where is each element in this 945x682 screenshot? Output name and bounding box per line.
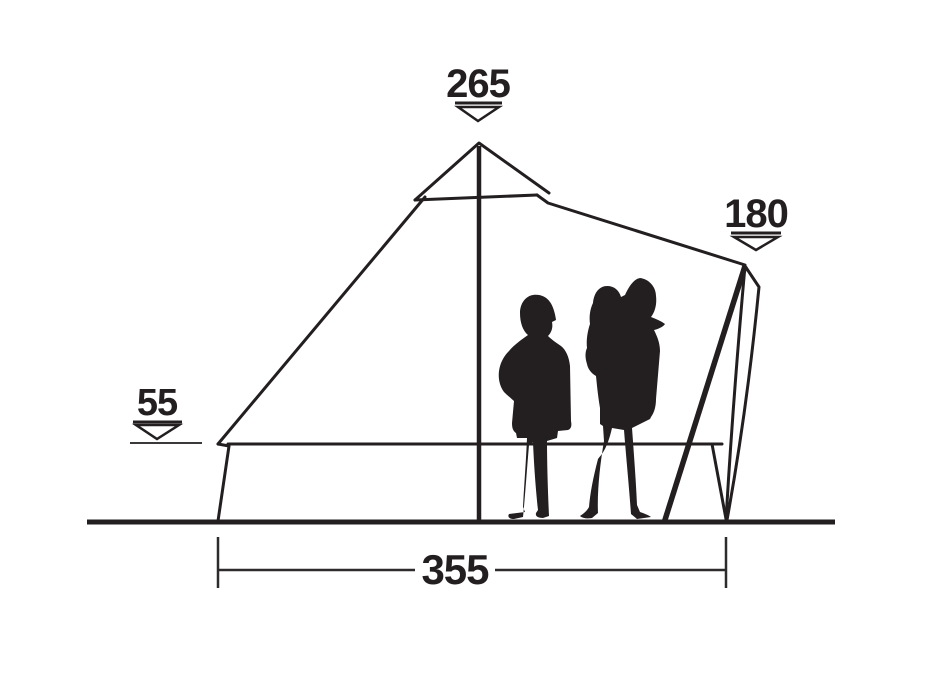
door-flap-edge (712, 444, 726, 519)
door-height-label: 180 (724, 192, 788, 236)
left-leg (218, 446, 229, 521)
right-ridge (537, 195, 745, 265)
floor-width-label: 355 (421, 546, 489, 593)
door-height-dimension: 180 (724, 192, 788, 250)
peak-cap-base (415, 195, 537, 200)
diagram-canvas: 265 180 55 355 (0, 0, 945, 682)
family-silhouette (499, 278, 665, 519)
tent-outline (218, 143, 759, 523)
adult-silhouette (499, 295, 572, 519)
door-level-marker-icon (734, 237, 778, 250)
side-height-label: 55 (137, 382, 178, 424)
peak-height-label: 265 (446, 62, 510, 106)
floor-width-dimension: 355 (218, 537, 726, 593)
adult-with-child-silhouette (580, 278, 665, 519)
peak-height-dimension: 265 (446, 62, 510, 121)
left-slope (218, 197, 425, 444)
side-height-dimension: 55 (130, 382, 202, 443)
peak-cap-flap (415, 143, 549, 200)
tent-dimension-diagram: 265 180 55 355 (0, 0, 945, 682)
side-level-marker-icon (136, 425, 179, 439)
peak-level-marker-icon (458, 107, 499, 121)
